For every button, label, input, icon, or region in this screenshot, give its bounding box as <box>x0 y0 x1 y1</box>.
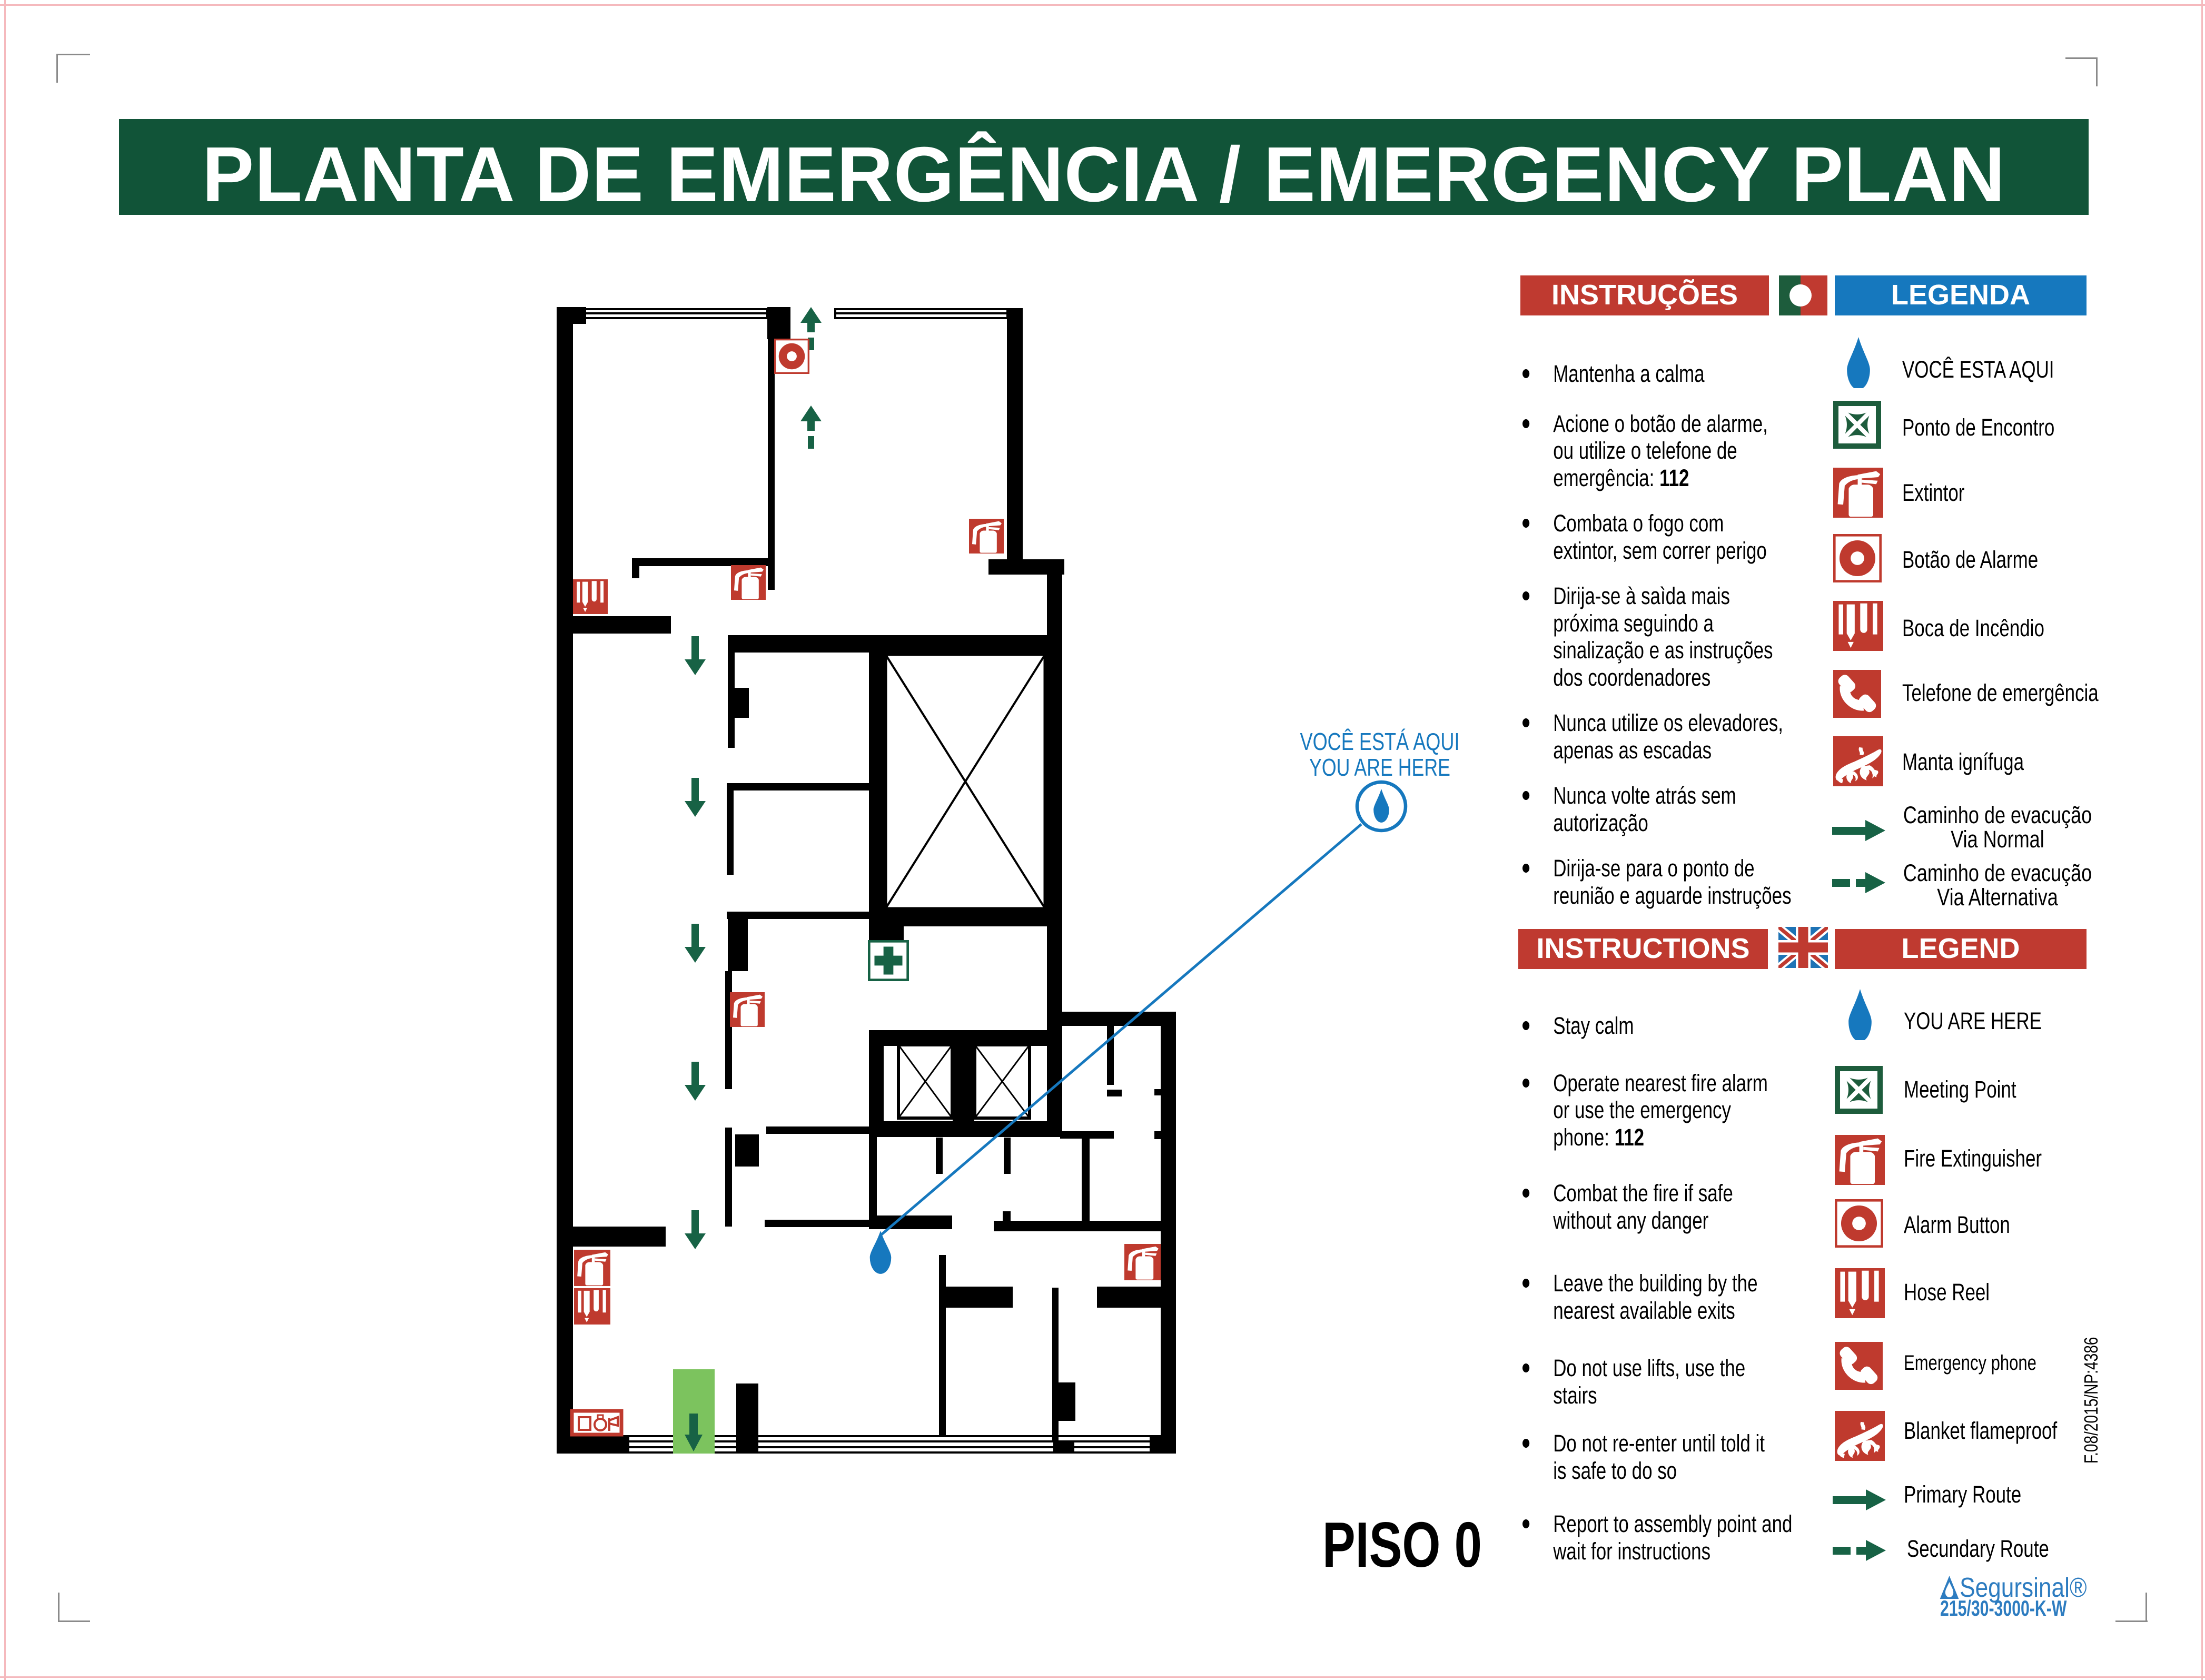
svg-text:YOU ARE HERE: YOU ARE HERE <box>1309 754 1450 781</box>
svg-text:VOCÊ ESTÁ AQUI: VOCÊ ESTÁ AQUI <box>1300 728 1460 755</box>
